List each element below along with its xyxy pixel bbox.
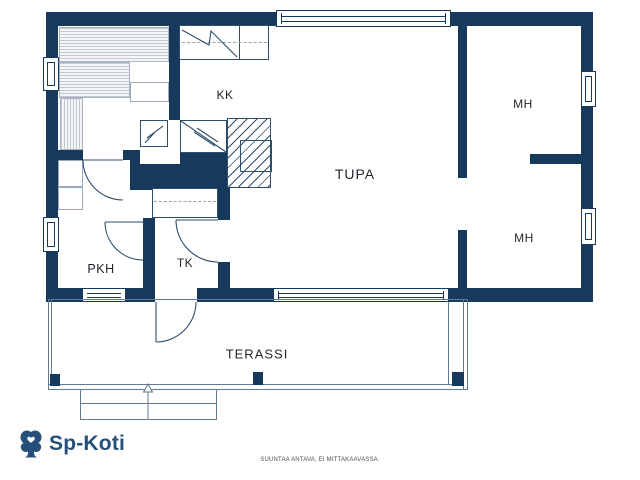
room-label-terassi: TERASSI: [226, 347, 289, 362]
terrace-post-center: [253, 372, 263, 385]
window-mullion: [281, 13, 282, 24]
room-label-tupa: TUPA: [335, 166, 375, 182]
room-label-kk: KK: [216, 88, 233, 102]
wall-sauna-bottom-west: [46, 150, 83, 160]
floor-plan: KK TUPA MH MH PKH TK TERASSI Sp-Koti SUU…: [0, 0, 640, 480]
terrace-post-left: [50, 374, 60, 386]
window-frame: [47, 222, 55, 247]
window-mullion: [278, 297, 444, 298]
window-mullion: [278, 293, 444, 294]
wall-tk-right-lower: [218, 262, 230, 288]
wall-chimney-a: [180, 153, 227, 190]
wall-top-wing: [451, 12, 593, 26]
window-pkh-left: [43, 217, 59, 252]
sauna-bench-side: [60, 98, 83, 150]
window-mullion: [87, 297, 121, 298]
terrace-steps-tread-line: [80, 403, 217, 404]
fireplace-inner: [240, 140, 272, 172]
wall-tk-right-upper: [218, 188, 230, 220]
window-mullion: [278, 291, 279, 299]
window-mullion: [281, 16, 446, 17]
window-sauna-left: [43, 57, 59, 91]
terrace-steps: [80, 389, 217, 420]
sp-koti-logo: Sp-Koti: [18, 429, 125, 459]
wall-top-main: [46, 12, 277, 26]
sp-koti-logo-icon: [18, 429, 44, 459]
window-mh-bottom-right: [581, 208, 596, 245]
sauna-bench-upper: [59, 27, 169, 62]
wall-pkh-tk: [143, 218, 155, 288]
wall-chimney-b: [140, 164, 180, 190]
disclaimer-text: SUUNTAA ANTAVA, EI MITTAKAAVASSA.: [260, 457, 380, 463]
kitchen-upper-cabinet-dash: [182, 42, 267, 43]
window-mullion: [445, 13, 446, 24]
tk-closet: [152, 188, 218, 218]
window-frame: [585, 76, 592, 102]
door-pkh: [105, 222, 143, 260]
sauna-heater: [140, 120, 168, 147]
window-frame: [585, 213, 592, 240]
tk-closet-dash: [154, 201, 216, 202]
window-mh-top-right: [581, 71, 596, 107]
wall-tupa-wing-lower: [458, 230, 467, 288]
window-top: [276, 10, 451, 27]
terrace-deck-line-corner: [448, 302, 449, 385]
wall-tupa-wing-upper: [458, 26, 467, 178]
room-label-mh-bottom: MH: [514, 231, 534, 245]
sp-koti-logo-text: Sp-Koti: [49, 432, 125, 456]
room-label-tk: TK: [177, 256, 193, 270]
sauna-bench-step: [130, 82, 169, 102]
window-mullion: [281, 21, 446, 22]
wall-mh-divider: [530, 154, 593, 164]
terrace-post-right: [452, 372, 464, 386]
door-sauna-to-pkh: [83, 160, 123, 200]
kitchen-sink-unit: [180, 120, 227, 153]
sauna-bench-lower: [59, 62, 130, 98]
window-mullion: [87, 293, 121, 294]
room-label-pkh: PKH: [87, 262, 114, 276]
window-frame: [47, 62, 55, 86]
room-label-mh-top: MH: [513, 97, 533, 111]
pkh-fixture-upper: [58, 160, 83, 187]
window-mullion: [443, 291, 444, 299]
pkh-fixture-lower: [58, 187, 83, 210]
wall-pkh-corner: [130, 150, 140, 190]
terrace-deck-line-left: [51, 299, 52, 385]
